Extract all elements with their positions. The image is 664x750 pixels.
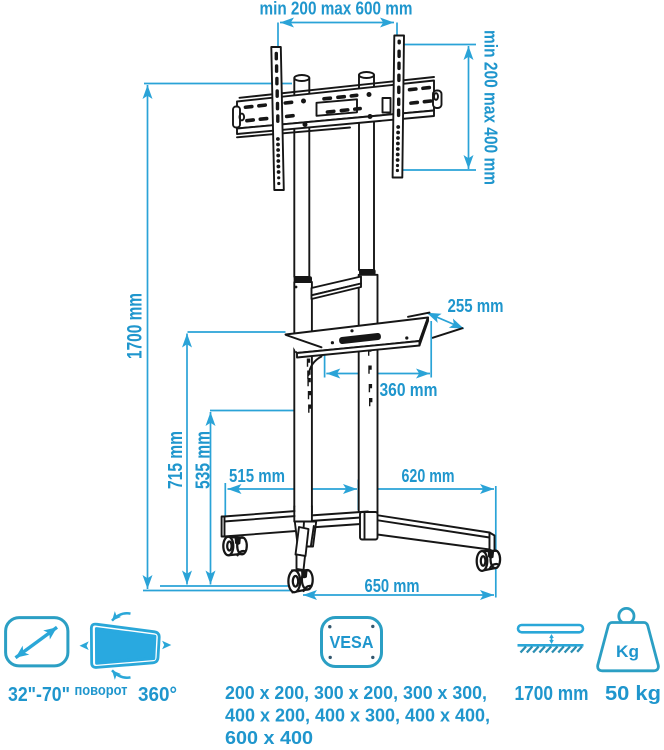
svg-text:VESA: VESA bbox=[330, 632, 374, 652]
svg-text:255 mm: 255 mm bbox=[448, 296, 504, 316]
svg-text:400 x 200, 400 x 300, 400 x 40: 400 x 200, 400 x 300, 400 x 400, bbox=[225, 706, 490, 726]
svg-text:min 200 max 600 mm: min 200 max 600 mm bbox=[260, 0, 413, 19]
svg-text:поворот: поворот bbox=[75, 682, 128, 699]
svg-text:515 mm: 515 mm bbox=[229, 466, 285, 486]
svg-text:650 mm: 650 mm bbox=[365, 576, 420, 596]
svg-text:Kg: Kg bbox=[616, 642, 639, 661]
svg-text:200 x 200, 300 x 200, 300 x 30: 200 x 200, 300 x 200, 300 x 300, bbox=[225, 683, 487, 703]
svg-text:1700 mm: 1700 mm bbox=[515, 683, 589, 705]
svg-text:715 mm: 715 mm bbox=[165, 431, 187, 489]
svg-text:360°: 360° bbox=[138, 684, 177, 706]
svg-text:360 mm: 360 mm bbox=[380, 380, 438, 400]
svg-text:min 200 max 400 mm: min 200 max 400 mm bbox=[481, 30, 501, 185]
svg-text:1700 mm: 1700 mm bbox=[123, 293, 147, 359]
svg-text:32"-70": 32"-70" bbox=[8, 684, 70, 706]
svg-text:620 mm: 620 mm bbox=[402, 466, 455, 486]
svg-text:600 x 400: 600 x 400 bbox=[225, 728, 313, 748]
svg-text:50 kg: 50 kg bbox=[605, 683, 661, 705]
